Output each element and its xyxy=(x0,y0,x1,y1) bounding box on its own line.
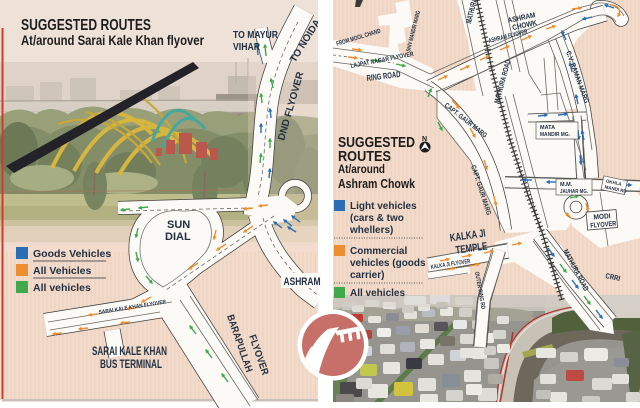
svg-text:Goods Vehicles: Goods Vehicles xyxy=(33,248,111,260)
svg-text:Light vehicles: Light vehicles xyxy=(350,201,417,212)
svg-text:ASHRAM: ASHRAM xyxy=(284,276,321,288)
svg-text:At/around: At/around xyxy=(338,164,385,176)
svg-text:Ashram Chowk: Ashram Chowk xyxy=(338,177,415,191)
svg-text:BUS TERMINAL: BUS TERMINAL xyxy=(100,359,162,371)
svg-text:SUGGESTED ROUTES: SUGGESTED ROUTES xyxy=(21,17,151,34)
svg-text:DIAL: DIAL xyxy=(165,231,191,243)
svg-text:VIHAR: VIHAR xyxy=(233,41,260,53)
svg-text:At/around Sarai Kale Khan flyo: At/around Sarai Kale Khan flyover xyxy=(21,33,205,48)
svg-text:All vehicles: All vehicles xyxy=(33,282,91,294)
svg-text:MATA: MATA xyxy=(540,125,555,131)
svg-text:JAUHAR MG.: JAUHAR MG. xyxy=(560,189,588,195)
svg-text:vehicles (goods: vehicles (goods xyxy=(350,258,426,269)
svg-text:All Vehicles: All Vehicles xyxy=(33,265,92,277)
svg-text:MODI: MODI xyxy=(593,213,611,221)
svg-text:All vehicles: All vehicles xyxy=(350,288,405,299)
svg-text:TO MAYUR: TO MAYUR xyxy=(233,29,278,41)
svg-text:M.M.: M.M. xyxy=(560,182,573,188)
svg-text:carrier): carrier) xyxy=(350,270,384,281)
svg-text:Commercial: Commercial xyxy=(350,246,407,257)
svg-text:(cars & two: (cars & two xyxy=(350,213,404,224)
svg-text:whellers): whellers) xyxy=(349,225,393,236)
svg-text:SUN: SUN xyxy=(167,219,190,231)
svg-text:ROUTES: ROUTES xyxy=(338,149,391,165)
svg-text:MANDIR MG.: MANDIR MG. xyxy=(540,132,570,138)
svg-text:SARAI KALE KHAN: SARAI KALE KHAN xyxy=(92,346,167,358)
